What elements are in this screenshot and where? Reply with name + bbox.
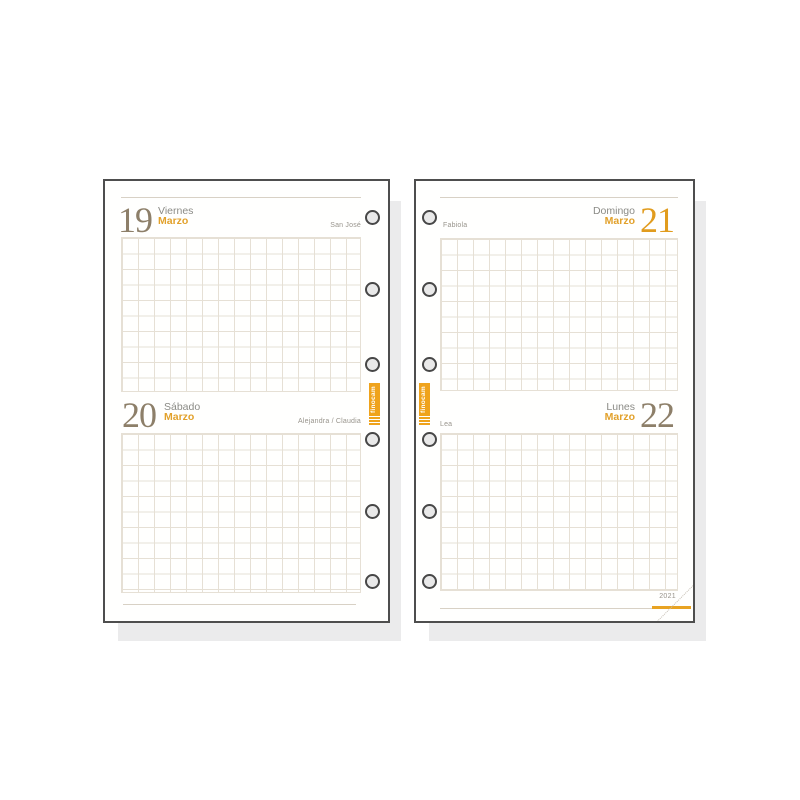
diary-page-left: 19 Viernes Marzo San José 20 Sábado Marz… [103,179,390,623]
saint-name: Lea [440,421,452,428]
saint-name: Alejandra / Claudia [121,418,361,425]
finocam-logo: finocam [369,383,380,416]
month-name: Marzo [605,412,635,422]
binder-hole [422,432,437,447]
finocam-logo-text: finocam [371,386,378,413]
binder-hole [422,357,437,372]
notes-grid [121,237,361,392]
diary-page-right: Fabiola Domingo Marzo 21 Lea Lunes Marzo… [414,179,695,623]
day-number: 19 [118,202,152,238]
binder-hole [422,574,437,589]
binder-hole [365,504,380,519]
finocam-stripes-icon [419,417,430,425]
binder-hole [365,432,380,447]
saint-name: San José [121,222,361,229]
day-header: Lunes Marzo [605,402,635,422]
top-rule [121,197,361,198]
finocam-brand-tab: finocam [369,383,380,426]
month-name: Marzo [593,216,635,226]
day-number: 22 [640,397,674,433]
day-number: 20 [122,397,156,433]
notes-grid [440,433,678,591]
notes-grid [440,238,678,391]
top-rule [440,197,678,198]
binder-hole [365,574,380,589]
binder-hole [365,210,380,225]
bottom-rule [440,608,657,609]
finocam-stripes-icon [369,417,380,425]
notes-grid [121,433,361,593]
saint-name: Fabiola [443,222,467,229]
binder-hole [422,504,437,519]
binder-hole [422,282,437,297]
finocam-brand-tab: finocam [419,383,430,426]
binder-hole [422,210,437,225]
year-label: 2021 [659,593,676,600]
day-header: Domingo Marzo [593,206,635,226]
bottom-rule [123,604,356,605]
binder-hole [365,282,380,297]
day-number: 21 [640,202,674,238]
finocam-logo: finocam [419,383,430,416]
binder-hole [365,357,380,372]
finocam-logo-text: finocam [421,386,428,413]
